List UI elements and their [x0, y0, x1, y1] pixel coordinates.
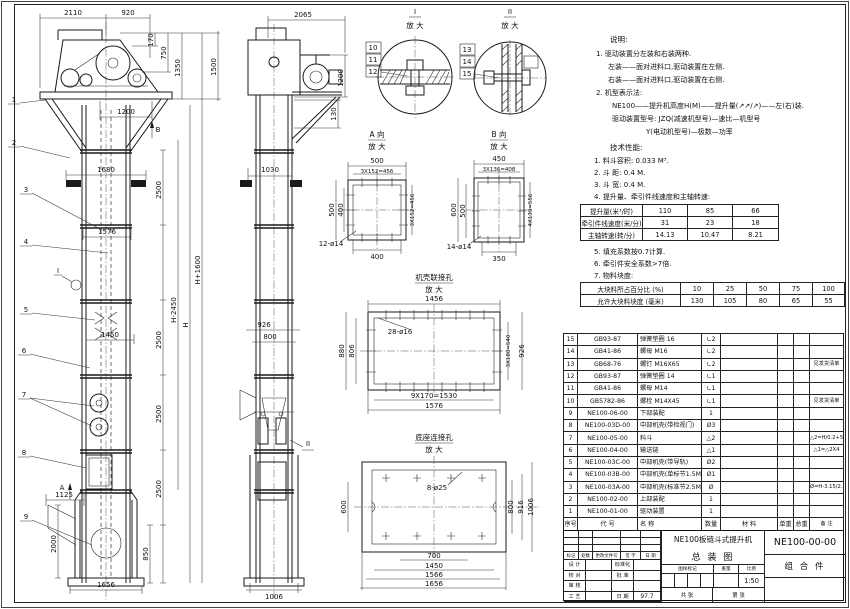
dim-label: 800	[507, 500, 515, 513]
table-cell	[810, 506, 844, 518]
table-cell: 大块料所占百分比 (%)	[581, 283, 681, 295]
table-cell: ∟2	[702, 334, 721, 346]
table-row: 14GB41-86螺母 M16∟2	[564, 346, 844, 358]
table-cell: 13	[564, 358, 578, 370]
table-cell	[778, 493, 794, 505]
tech-item: 2. 斗 距: 0.4 M.	[594, 169, 645, 177]
drawing-date: 97.7	[634, 592, 661, 603]
note-line: 驱动装置型号: JZQ(减速机型号)—速比—机型号	[612, 115, 760, 123]
dim-label: 1030	[261, 166, 279, 174]
dim-label: 1566	[425, 571, 443, 579]
table-cell: 中部机壳(单标节1.5M、1M)	[638, 469, 702, 481]
table-cell: 提升量(米³/时)	[581, 205, 643, 217]
balloon: 12	[369, 68, 378, 76]
detail-mark-i: I	[57, 267, 59, 275]
label-check: 校 对	[564, 571, 586, 582]
tech-item: 3. 斗 宽: 0.4 M.	[594, 181, 645, 189]
table-cell: NE100-03D-00	[578, 420, 638, 432]
table-cell: 10	[681, 283, 714, 295]
table-cell: △2	[702, 432, 721, 444]
sheet-page: 第 张	[712, 588, 764, 602]
dim-label: 1200	[337, 69, 345, 87]
dim-label: 926	[257, 321, 271, 329]
balloon: 10	[369, 44, 378, 52]
dim-label: 500	[328, 203, 336, 216]
table-cell: GB68-76	[578, 358, 638, 370]
table-cell: 100	[813, 283, 845, 295]
detail-title: II	[508, 8, 512, 16]
table-row: 11GB41-86螺母 M14∟1	[564, 383, 844, 395]
table-cell	[810, 334, 844, 346]
balloon: 9	[24, 513, 28, 521]
table-cell: 见发货清单	[810, 358, 844, 370]
table-cell: NE100-01-00	[578, 506, 638, 518]
hole-callout: 8-ø25	[427, 484, 447, 492]
table-cell	[778, 407, 794, 419]
table-cell: 7	[564, 432, 578, 444]
table-cell: 上部装配	[638, 493, 702, 505]
table-cell: 66	[733, 205, 779, 217]
table-cell: NE100-05-00	[578, 432, 638, 444]
balloon: 15	[463, 70, 472, 78]
table-cell	[794, 370, 810, 382]
table-cell: 螺母 M16	[638, 346, 702, 358]
table-cell: NE100-03B-00	[578, 469, 638, 481]
table-cell: 23	[688, 217, 733, 229]
table-cell: 15	[564, 334, 578, 346]
stamp-boxes	[661, 574, 713, 588]
dim-label: 1656	[425, 580, 443, 588]
table-cell	[778, 432, 794, 444]
dim-label: 130	[330, 107, 338, 120]
dim-label: 1450	[101, 331, 119, 339]
table-row: 10GB5782-86螺栓 M14X45∟1见发货清单	[564, 395, 844, 407]
table-cell: 1	[702, 407, 721, 419]
label-design: 设 计	[564, 560, 586, 571]
table-cell	[810, 456, 844, 468]
table-row: 6NE100-04-00输送链△1△1=△2X4	[564, 444, 844, 456]
table-cell: 备 注	[810, 518, 844, 530]
dim-label: 1450	[425, 562, 443, 570]
signature-grid: 设 计 标准化 校 对 批 准 审 核 工 艺 日 期 97.7	[564, 560, 661, 602]
table-cell	[721, 358, 778, 370]
table-cell	[794, 407, 810, 419]
side-view: 2065 1200 130 1030 926 800 1006 II	[240, 11, 348, 601]
table-cell	[794, 506, 810, 518]
table-row: 牵引件线速度(米/分)312318	[581, 217, 779, 229]
notes-heading: 说明:	[610, 36, 628, 44]
balloon: 4	[24, 238, 29, 246]
table-cell: 1	[702, 493, 721, 505]
table-cell: 输送链	[638, 444, 702, 456]
table-cell: NE100-03A-00	[578, 481, 638, 493]
table-cell: ∟1	[702, 395, 721, 407]
label-weight: 重量	[713, 565, 738, 574]
table-cell	[721, 346, 778, 358]
table-cell	[721, 469, 778, 481]
table-cell	[794, 432, 810, 444]
table-cell	[810, 469, 844, 481]
label-scale: 比例	[738, 565, 764, 574]
right-panel: 说明: 1. 驱动装置分左装和右装两种. 左装——面对进料口,驱动装置在左侧. …	[560, 4, 844, 601]
table-cell	[794, 456, 810, 468]
dim-label: H	[182, 322, 190, 327]
table-row: 3NE100-03A-00中部机壳(标准节2.5M)ØØ=H-3.15/2.5	[564, 481, 844, 493]
view-subtitle: 放 大	[368, 141, 386, 151]
detail-i: I 放 大 10 11 12	[366, 8, 454, 118]
table-row: 5NE100-03C-00中部机壳(带导轨)Ø2	[564, 456, 844, 468]
table-row: 序号代 号名 称数量材 料单重总重备 注	[564, 518, 844, 530]
table-cell	[778, 395, 794, 407]
table-cell	[721, 493, 778, 505]
drawing-sheet: 2110 920 170 750 1350 1500 1200 B 1680 1…	[0, 0, 850, 609]
table-cell	[810, 420, 844, 432]
dim-label: 2110	[64, 9, 82, 17]
table-cell: 31	[643, 217, 688, 229]
view-title: 机壳联接孔	[415, 272, 453, 282]
table-cell: 弹簧垫圈 16	[638, 334, 702, 346]
table-row: 12GB93-87弹簧垫圈 14∟1	[564, 370, 844, 382]
dim-label: 400	[337, 203, 345, 216]
note-line: 2. 机型表示法:	[596, 89, 642, 97]
table-cell: Ø	[702, 481, 721, 493]
revision-header-row: 标记 处数 更改文件号 签 字 日 期	[564, 552, 661, 560]
tech-item: 1. 料斗容积: 0.033 M³.	[594, 157, 669, 165]
table-cell: Ø=H-3.15/2.5	[810, 481, 844, 493]
view-subtitle: 放 大	[490, 141, 508, 151]
table-cell	[721, 444, 778, 456]
label-sign: 签 字	[621, 552, 641, 560]
tech-item: 5. 填充系数按0.7计算.	[594, 248, 665, 256]
base-view: 底座连接孔 放 大 8-ø25 600 800 916 1006 700 145…	[340, 432, 540, 590]
table-cell	[794, 358, 810, 370]
balloon: 2	[12, 139, 16, 147]
table-cell	[794, 383, 810, 395]
drawing-title: 总 装 图	[662, 548, 764, 564]
dim-label: 450	[492, 155, 505, 163]
table-cell: 1	[564, 506, 578, 518]
table-cell	[810, 370, 844, 382]
weight-value	[713, 574, 738, 588]
balloon: 11	[369, 56, 378, 64]
title-block: 标记 处数 更改文件号 签 字 日 期 设 计 标准化 校 对 批 准 审 核 …	[563, 530, 844, 601]
table-cell: 名 称	[638, 518, 702, 530]
note-line: 右装——面对进料口,驱动装置在右侧.	[608, 76, 724, 84]
table-cell: 螺钉 M16X65	[638, 358, 702, 370]
table-cell: 允许大块料块度 (毫米)	[581, 295, 681, 307]
table-row: 4NE100-03B-00中部机壳(单标节1.5M、1M)Ø1	[564, 469, 844, 481]
label-stamp: 图样标记	[661, 565, 713, 574]
section-mark-a: A	[60, 484, 65, 492]
table-cell	[794, 346, 810, 358]
table-cell	[778, 420, 794, 432]
table-cell: 25	[714, 283, 747, 295]
tech-item: 7. 物料块度:	[594, 272, 633, 280]
table-cell	[721, 481, 778, 493]
table-row: 13GB68-76螺钉 M16X65∟2见发货清单	[564, 358, 844, 370]
note-line: 左装——面对进料口,驱动装置在左侧.	[608, 63, 724, 71]
dim-label: 2065	[294, 11, 312, 19]
table-cell: 代 号	[578, 518, 638, 530]
dim-label: 916	[517, 500, 525, 514]
dim-label: 926	[518, 344, 526, 358]
view-a: A 向 放 大 500 3X152=456 500 400 3X152=456 …	[319, 129, 416, 261]
table-cell: 螺栓 M14X45	[638, 395, 702, 407]
table-row: 允许大块料块度 (毫米)130105806555	[581, 295, 845, 307]
label-craft: 工 艺	[564, 592, 586, 603]
table-cell: 18	[733, 217, 779, 229]
balloon: 1	[12, 96, 16, 104]
table-cell	[794, 395, 810, 407]
table-cell: 主轴转速(转/分)	[581, 229, 643, 241]
table-cell	[794, 493, 810, 505]
hole-callout: 28-ø16	[388, 328, 413, 336]
table-cell: GB93-87	[578, 370, 638, 382]
table-cell	[810, 383, 844, 395]
table-cell	[721, 420, 778, 432]
table-cell: 5	[564, 456, 578, 468]
table-cell	[721, 395, 778, 407]
table-cell	[810, 493, 844, 505]
table-cell: ∟1	[702, 383, 721, 395]
drawing-views: 2110 920 170 750 1350 1500 1200 B 1680 1…	[0, 0, 560, 609]
table-cell	[778, 506, 794, 518]
tech-item: 6. 牵引件安全系数>7倍.	[594, 260, 671, 268]
dim-label: 3X152=456	[361, 169, 394, 175]
balloon: 14	[463, 58, 472, 66]
table-cell: 驱动装置	[638, 506, 702, 518]
table-cell: 14	[564, 346, 578, 358]
dim-label: 600	[340, 500, 348, 513]
dim-label: 800	[263, 333, 276, 341]
table-cell: 10.47	[688, 229, 733, 241]
view-title: 底座连接孔	[415, 432, 453, 442]
table-cell	[721, 383, 778, 395]
balloon: 7	[22, 391, 26, 399]
table-cell: ∟1	[702, 370, 721, 382]
dim-label: 9X170=1530	[411, 392, 457, 400]
table-cell	[794, 481, 810, 493]
table-cell: 螺母 M14	[638, 383, 702, 395]
dim-label: H+1600	[194, 256, 202, 285]
table-cell: 下部装配	[638, 407, 702, 419]
table-cell: 105	[714, 295, 747, 307]
hole-callout: 12-ø14	[319, 240, 344, 248]
table-cell: NE100-03C-00	[578, 456, 638, 468]
part-kind: 组 合 件	[764, 555, 845, 578]
table-cell: 130	[681, 295, 714, 307]
detail-ii: II 放 大 13 14 15	[460, 8, 546, 116]
table-cell: Ø3	[702, 420, 721, 432]
table-cell	[721, 407, 778, 419]
table-cell: 80	[747, 295, 780, 307]
table-cell: 3	[564, 481, 578, 493]
dim-label: 3X180=540	[506, 334, 512, 367]
dim-label: 1656	[97, 581, 115, 589]
table-cell	[794, 469, 810, 481]
table-cell: ∟2	[702, 346, 721, 358]
table-cell: △2=H/0.2+5.75	[810, 432, 844, 444]
balloon: 8	[22, 449, 26, 457]
table-row: 8NE100-03D-00中部机壳(带检视门)Ø3	[564, 420, 844, 432]
dim-label: 1456	[425, 295, 443, 303]
table-cell	[778, 346, 794, 358]
dim-label: 1576	[425, 402, 443, 410]
dim-label: 2500	[155, 480, 163, 498]
label-approve: 批 准	[612, 571, 634, 582]
table-cell: 见发货清单	[810, 395, 844, 407]
label-mark: 标记	[564, 552, 579, 560]
dim-label: 1500	[210, 58, 218, 76]
table-cell: NE100-06-00	[578, 407, 638, 419]
dim-label: 3X152=456	[410, 193, 416, 226]
dim-label: 1350	[174, 59, 182, 77]
table-cell: NE100-04-00	[578, 444, 638, 456]
table-cell: 4	[564, 469, 578, 481]
dim-label: 2500	[155, 331, 163, 349]
table-cell: 14.13	[643, 229, 688, 241]
balloon: 13	[463, 46, 472, 54]
table-cell: NE100-02-00	[578, 493, 638, 505]
table-cell: 弹簧垫圈 14	[638, 370, 702, 382]
table-cell: △1	[702, 444, 721, 456]
table-cell	[778, 444, 794, 456]
dim-label: 2500	[155, 405, 163, 423]
table-cell: 1	[702, 506, 721, 518]
label-audit: 审 核	[564, 581, 586, 592]
table-cell: GB93-87	[578, 334, 638, 346]
table-cell	[778, 469, 794, 481]
table-cell: 数量	[702, 518, 721, 530]
dim-label: 700	[427, 552, 440, 560]
balloon: 3	[24, 186, 28, 194]
table-cell	[778, 456, 794, 468]
table-cell: GB41-86	[578, 346, 638, 358]
table-cell	[721, 432, 778, 444]
table-cell	[794, 420, 810, 432]
label-date2: 日 期	[612, 592, 634, 603]
dim-label: 2500	[155, 181, 163, 199]
section-mark-b: B	[156, 126, 161, 134]
drawing-number: NE100-00-00	[764, 531, 845, 555]
scale-value: 1:50	[738, 574, 764, 588]
table-cell: 材 料	[721, 518, 778, 530]
table-cell: 12	[564, 370, 578, 382]
tech-heading: 技术性能:	[610, 144, 643, 152]
table-row: 7NE100-05-00料斗△2△2=H/0.2+5.75	[564, 432, 844, 444]
table-row: 2NE100-02-00上部装配1	[564, 493, 844, 505]
dim-label: 600	[450, 203, 458, 216]
detail-subtitle: 放 大	[406, 20, 424, 30]
table-cell: 中部机壳(标准节2.5M)	[638, 481, 702, 493]
casing-joint-view: 机壳联接孔 放 大 1456 28-ø16 880 806 3X180=540 …	[338, 272, 526, 414]
view-title: B 向	[491, 129, 506, 139]
table-cell	[721, 506, 778, 518]
dim-label: 750	[160, 46, 168, 59]
table-cell	[810, 407, 844, 419]
sheet-total: 共 张	[661, 588, 712, 602]
label-file: 更改文件号	[593, 552, 621, 560]
table-cell: 55	[813, 295, 845, 307]
table-cell	[810, 346, 844, 358]
table-row: 1NE100-01-00驱动装置1	[564, 506, 844, 518]
dim-label: H-2450	[170, 297, 178, 323]
dim-label: 806	[348, 344, 356, 358]
table-cell	[778, 383, 794, 395]
table-cell: 总重	[794, 518, 810, 530]
table-cell	[721, 370, 778, 382]
table-cell: 75	[780, 283, 813, 295]
revision-grid	[564, 531, 661, 552]
table-row: 提升量(米³/时)1108566	[581, 205, 779, 217]
table-cell: 65	[780, 295, 813, 307]
note-line: 1. 驱动装置分左装和右装两种.	[596, 50, 691, 58]
dim-label: 500	[459, 204, 467, 217]
dim-label: 170	[147, 33, 155, 46]
table-cell: 6	[564, 444, 578, 456]
table-cell: 2	[564, 493, 578, 505]
dim-label: 1006	[527, 498, 535, 516]
table-cell: 8	[564, 420, 578, 432]
dim-label: 1200	[117, 108, 135, 116]
dim-label: 400	[370, 253, 383, 261]
table-cell: 序号	[564, 518, 578, 530]
table-row: 大块料所占百分比 (%)10255075100	[581, 283, 845, 295]
table-cell: GB5782-86	[578, 395, 638, 407]
detail-mark-ii: II	[306, 440, 310, 448]
table-cell: 中部机壳(带导轨)	[638, 456, 702, 468]
table-cell: 单重	[778, 518, 794, 530]
label-std: 标准化	[612, 560, 634, 571]
balloon: 5	[24, 306, 28, 314]
empty-cell	[764, 578, 845, 602]
table-cell: 110	[643, 205, 688, 217]
table-cell: 50	[747, 283, 780, 295]
product-name: NE100板链斗式提升机	[662, 531, 764, 548]
table-row: 9NE100-06-00下部装配1	[564, 407, 844, 419]
bom-table: 15GB93-87弹簧垫圈 16∟214GB41-86螺母 M16∟213GB6…	[563, 333, 844, 531]
detail-title: I	[414, 8, 416, 16]
table-cell	[721, 334, 778, 346]
lump-table: 大块料所占百分比 (%)10255075100允许大块料块度 (毫米)13010…	[580, 282, 845, 307]
dim-label: 1680	[97, 166, 115, 174]
table-cell	[721, 456, 778, 468]
label-qty: 处数	[579, 552, 593, 560]
dim-label: 3X136=408	[483, 167, 516, 173]
view-subtitle: 放 大	[425, 444, 443, 454]
table-cell: 85	[688, 205, 733, 217]
dim-label: 500	[370, 157, 383, 165]
dim-label: 880	[338, 344, 346, 357]
table-cell: ∟2	[702, 358, 721, 370]
dim-label: 2000	[50, 535, 58, 553]
table-cell	[794, 444, 810, 456]
table-cell: GB41-86	[578, 383, 638, 395]
table-cell	[778, 481, 794, 493]
table-cell: 8.21	[733, 229, 779, 241]
table-cell	[778, 358, 794, 370]
table-cell: Ø1	[702, 469, 721, 481]
dim-label: 350	[492, 255, 505, 263]
hole-callout: 14-ø14	[447, 243, 472, 251]
table-cell	[778, 370, 794, 382]
table-cell: △1=△2X4	[810, 444, 844, 456]
table-cell: 料斗	[638, 432, 702, 444]
tech-item: 4. 提升量、牵引件线速度和主轴转速:	[594, 193, 710, 201]
table-cell: Ø2	[702, 456, 721, 468]
table-cell: 11	[564, 383, 578, 395]
table-cell	[778, 334, 794, 346]
